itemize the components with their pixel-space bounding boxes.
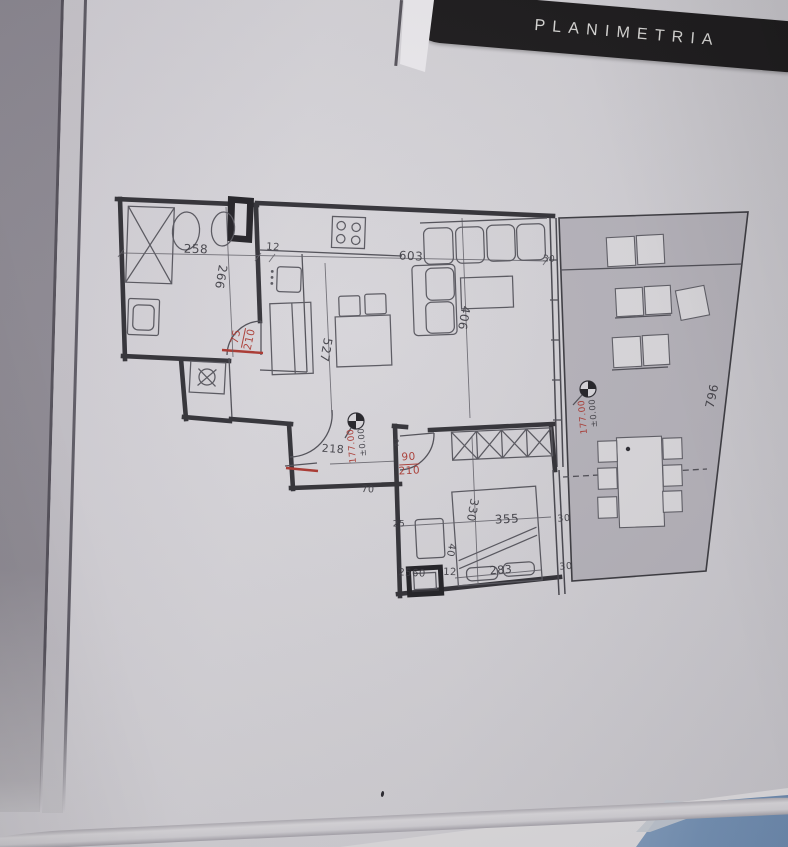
dining-chair xyxy=(365,294,387,315)
bedroom xyxy=(394,424,565,596)
bedroom-door-arc xyxy=(400,433,434,470)
floor-plan-photo: 258266126033040652775210218±0.00177.0029… xyxy=(0,0,788,847)
washbasin xyxy=(127,298,159,335)
stove xyxy=(331,216,365,248)
level-marker-entry xyxy=(345,413,364,438)
page-title: PLANIMETRIA xyxy=(494,13,721,50)
entry-door-arc xyxy=(290,410,332,457)
bathroom xyxy=(117,196,263,361)
terrace xyxy=(559,212,748,581)
vestibule xyxy=(181,358,232,421)
floor-plan-drawing xyxy=(0,0,788,847)
dining-chair xyxy=(339,296,361,317)
wardrobe xyxy=(451,428,552,460)
entry xyxy=(231,410,400,489)
kitchen xyxy=(257,203,553,375)
dining-table xyxy=(335,315,392,367)
dining-set xyxy=(335,294,392,367)
kitchen-sink xyxy=(270,266,301,292)
coffee-table xyxy=(460,276,513,309)
washing-machine xyxy=(189,361,226,394)
toilet xyxy=(171,211,201,251)
shower xyxy=(126,206,175,284)
